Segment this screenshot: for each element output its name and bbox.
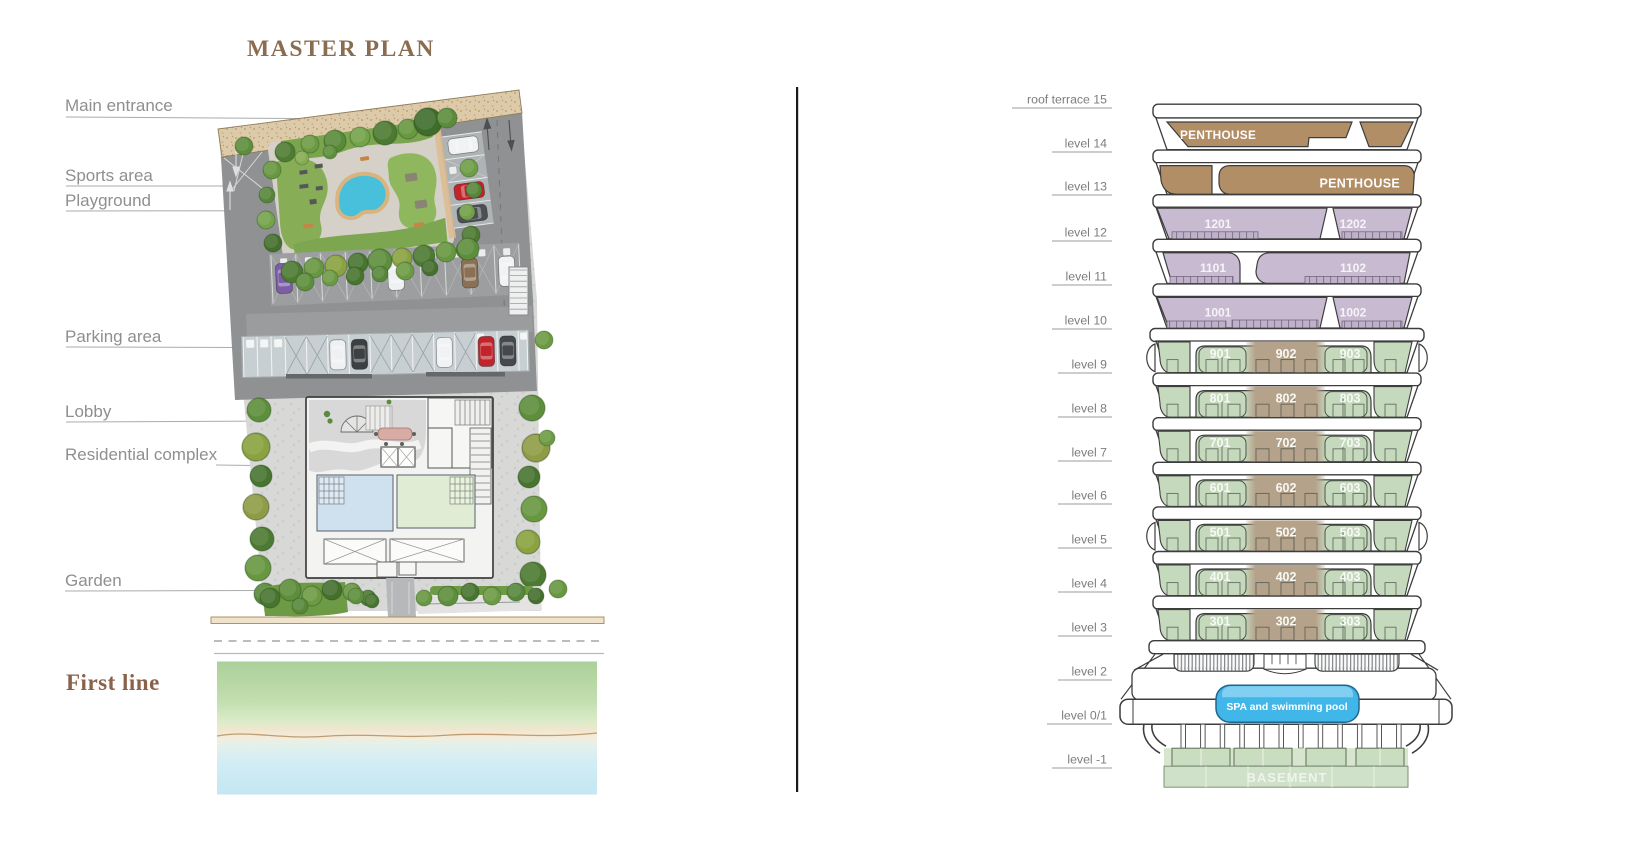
svg-text:902: 902 xyxy=(1276,347,1297,361)
svg-text:Sports area: Sports area xyxy=(65,166,153,185)
svg-text:Main entrance: Main entrance xyxy=(65,96,173,115)
svg-text:303: 303 xyxy=(1340,615,1361,629)
svg-text:level 5: level 5 xyxy=(1071,533,1107,547)
svg-text:level 12: level 12 xyxy=(1065,226,1108,240)
svg-text:level 9: level 9 xyxy=(1071,358,1107,372)
svg-text:301: 301 xyxy=(1210,615,1231,629)
svg-text:level 13: level 13 xyxy=(1065,180,1108,194)
svg-text:302: 302 xyxy=(1276,615,1297,629)
svg-text:level 8: level 8 xyxy=(1071,402,1107,416)
svg-text:502: 502 xyxy=(1276,525,1297,539)
svg-text:403: 403 xyxy=(1340,570,1361,584)
svg-text:PENTHOUSE: PENTHOUSE xyxy=(1180,128,1256,142)
svg-text:1001: 1001 xyxy=(1205,305,1232,319)
svg-text:roof terrace 15: roof terrace 15 xyxy=(1027,93,1107,107)
svg-text:SPA and swimming pool: SPA and swimming pool xyxy=(1226,701,1347,713)
svg-text:1102: 1102 xyxy=(1340,261,1366,275)
svg-text:Parking area: Parking area xyxy=(65,327,162,346)
svg-text:level 14: level 14 xyxy=(1065,137,1108,151)
svg-text:Playground: Playground xyxy=(65,191,151,210)
svg-text:802: 802 xyxy=(1276,392,1297,406)
svg-text:level 6: level 6 xyxy=(1071,489,1107,503)
svg-text:level 3: level 3 xyxy=(1071,621,1107,635)
svg-text:1202: 1202 xyxy=(1340,217,1367,231)
svg-text:Garden: Garden xyxy=(65,571,122,590)
svg-text:PENTHOUSE: PENTHOUSE xyxy=(1320,177,1401,191)
svg-text:401: 401 xyxy=(1210,570,1231,584)
svg-text:701: 701 xyxy=(1210,436,1231,450)
svg-text:1201: 1201 xyxy=(1205,217,1232,231)
svg-text:1101: 1101 xyxy=(1200,261,1226,275)
svg-text:801: 801 xyxy=(1210,392,1231,406)
svg-text:Lobby: Lobby xyxy=(65,402,112,421)
svg-text:803: 803 xyxy=(1340,392,1361,406)
svg-text:501: 501 xyxy=(1210,525,1231,539)
svg-text:703: 703 xyxy=(1340,436,1361,450)
svg-text:Residential complex: Residential complex xyxy=(65,445,218,464)
svg-text:603: 603 xyxy=(1340,481,1361,495)
svg-text:1002: 1002 xyxy=(1340,305,1367,319)
svg-text:601: 601 xyxy=(1210,481,1231,495)
svg-text:702: 702 xyxy=(1276,436,1297,450)
svg-text:level 0/1: level 0/1 xyxy=(1061,709,1107,723)
svg-text:level 7: level 7 xyxy=(1071,446,1107,460)
svg-text:level 4: level 4 xyxy=(1071,577,1107,591)
svg-text:level 10: level 10 xyxy=(1065,314,1108,328)
svg-text:level 2: level 2 xyxy=(1071,665,1107,679)
svg-text:MASTER PLAN: MASTER PLAN xyxy=(247,36,435,62)
svg-text:BASEMENT: BASEMENT xyxy=(1247,770,1328,785)
svg-text:901: 901 xyxy=(1210,347,1231,361)
svg-text:602: 602 xyxy=(1276,481,1297,495)
svg-text:level -1: level -1 xyxy=(1067,753,1107,767)
svg-text:level 11: level 11 xyxy=(1066,270,1108,284)
svg-text:402: 402 xyxy=(1276,570,1297,584)
svg-text:First line: First line xyxy=(66,670,160,695)
svg-text:903: 903 xyxy=(1340,347,1361,361)
svg-text:503: 503 xyxy=(1340,525,1361,539)
